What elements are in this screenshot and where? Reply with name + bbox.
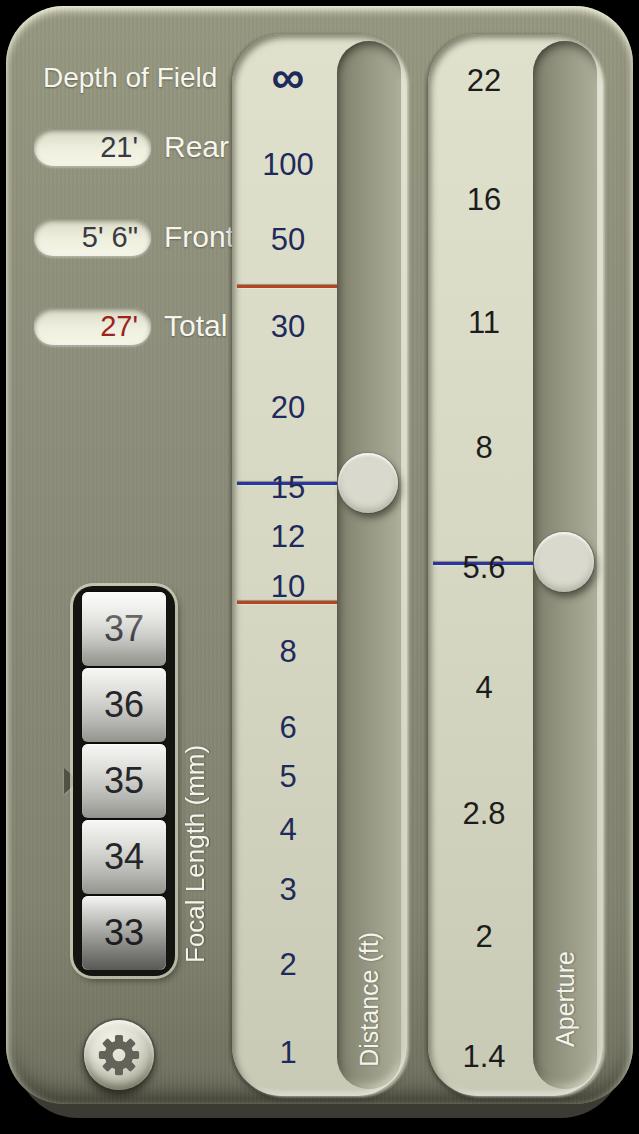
distance-tick: 100 <box>234 147 342 183</box>
gear-icon <box>96 1032 142 1078</box>
total-label: Total <box>164 309 227 343</box>
screen: Depth of Field 21' Rear 5' 6" Front 27' … <box>0 0 639 1134</box>
front-label: Front <box>164 220 234 254</box>
rear-label: Rear <box>164 130 229 164</box>
distance-slider[interactable]: ∞1005030201512108654321 Distance (ft) <box>232 34 407 1096</box>
focal-length-picker[interactable]: 3736353433 <box>73 586 175 976</box>
aperture-tick: 4 <box>430 670 538 706</box>
distance-tick: 20 <box>234 390 342 426</box>
distance-tick: ∞ <box>234 57 342 97</box>
rear-readout: 21' Rear <box>34 128 229 166</box>
page-title: Depth of Field <box>43 62 217 94</box>
aperture-tick: 8 <box>430 430 538 466</box>
distance-tick: 6 <box>234 710 342 746</box>
aperture-tick: 16 <box>430 182 538 218</box>
distance-tick: 12 <box>234 519 342 555</box>
aperture-slider[interactable]: 22161185.642.821.4 Aperture <box>428 34 603 1096</box>
picker-cell[interactable]: 34 <box>82 820 166 894</box>
distance-tick: 8 <box>234 634 342 670</box>
distance-track[interactable]: Distance (ft) <box>337 41 401 1089</box>
aperture-tick: 22 <box>430 63 538 99</box>
aperture-tick: 11 <box>430 305 538 341</box>
rear-value-display: 21' <box>34 128 151 166</box>
rear-value: 21' <box>100 131 138 164</box>
distance-tick: 50 <box>234 222 342 258</box>
aperture-tick: 1.4 <box>430 1039 538 1075</box>
distance-tick: 3 <box>234 872 342 908</box>
front-value-display: 5' 6" <box>34 218 151 256</box>
aperture-tick: 5.6 <box>430 550 538 586</box>
aperture-tick: 2.8 <box>430 796 538 832</box>
distance-knob[interactable] <box>338 453 398 513</box>
distance-tick: 10 <box>234 569 342 605</box>
front-readout: 5' 6" Front <box>34 218 234 256</box>
distance-tick: 1 <box>234 1035 342 1071</box>
aperture-tick: 2 <box>430 919 538 955</box>
aperture-knob[interactable] <box>534 532 594 592</box>
total-readout: 27' Total <box>34 307 227 345</box>
distance-tick: 5 <box>234 759 342 795</box>
total-value-display: 27' <box>34 307 151 345</box>
picker-cell[interactable]: 37 <box>82 592 166 666</box>
distance-tick: 4 <box>234 812 342 848</box>
front-value: 5' 6" <box>82 221 138 254</box>
focal-length-label: Focal Length (mm) <box>180 733 212 963</box>
distance-tick: 30 <box>234 309 342 345</box>
total-value: 27' <box>100 310 138 343</box>
picker-cell[interactable]: 35 <box>82 744 166 818</box>
picker-cell[interactable]: 33 <box>82 896 166 970</box>
settings-button[interactable] <box>84 1020 154 1090</box>
slider-marker <box>237 285 337 288</box>
aperture-track-label: Aperture <box>551 951 580 1047</box>
distance-tick: 2 <box>234 947 342 983</box>
distance-track-label: Distance (ft) <box>355 932 384 1067</box>
picker-cell[interactable]: 36 <box>82 668 166 742</box>
distance-tick: 15 <box>234 470 342 506</box>
